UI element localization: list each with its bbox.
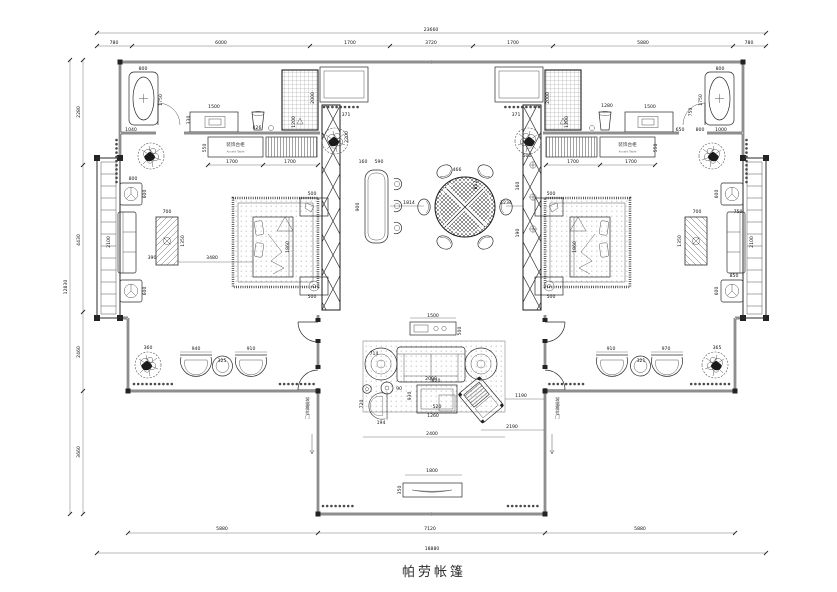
dimension-labels-layer: 2366078060001700372017005880780128302280… [63,27,755,552]
dim-label: 1750 [698,94,704,106]
tv-console [403,483,462,497]
dim-label: 750 [688,108,694,117]
dim-label: 550 [202,144,208,153]
dim-label: 550 [653,144,659,153]
dim-label: 1190 [515,393,527,399]
dim-label: 1200 [291,116,297,128]
dim-label: 700 [163,209,172,215]
central-hall [365,162,536,252]
dim-label: 1350 [180,235,186,247]
dim-label: 940 [192,346,201,352]
dim-label: 1500 [644,104,656,110]
dim-label: 1000 [715,127,727,133]
dimension-lines [68,31,768,555]
dim-label: 2460 [76,346,82,358]
dim-label: 2000 [545,92,551,104]
dim-label: 5880 [216,526,228,532]
dim-label: 714 [370,351,379,357]
dim-label: 3480 [206,255,218,261]
dim-label: 194 [377,420,386,426]
dim-label: 1700 [344,40,356,46]
dim-label: 6000 [215,40,227,46]
dim-label: 1234 [500,200,512,206]
dim-label: 325 [218,358,227,364]
dim-label: 720 [359,400,365,409]
floor-plan-drawing: 装饰台柜 Accent Table 装饰台柜 Accent Table 玻璃推拉… [0,0,837,592]
dim-label: 360 [144,345,153,351]
dim-label: 520 [433,404,442,410]
dim-label: 650 [676,127,685,133]
dim-label: 365 [713,345,722,351]
dim-label: 466 [453,167,462,173]
dim-label: 371 [342,112,351,118]
dim-label: 1280 [601,103,613,109]
drawing-title: 帕劳帐篷 [402,564,466,580]
dim-label: 750 [734,209,743,215]
dim-label: 426 [253,125,262,131]
accent-table-label-right-cn: 装饰台柜 [618,141,637,148]
dim-label: 800 [716,66,725,72]
dim-label: 350 [397,486,403,495]
dim-label: 3720 [425,40,437,46]
sliding-door-label-right: 玻璃推拉门 [555,396,560,421]
dim-label: 1800 [426,468,438,474]
dim-label: 1500 [427,313,439,319]
dim-label: 390 [148,255,157,261]
dim-label: 2280 [76,106,82,118]
dim-label: 700 [693,209,702,215]
dim-label: 1860 [285,241,291,253]
dim-label: 1350 [677,235,683,247]
sliding-door-label-left: 玻璃推拉门 [305,396,310,421]
dim-label: 800 [129,176,138,182]
dim-label: 18880 [425,546,440,552]
dim-label: 600 [142,287,148,296]
dim-label: 371 [512,112,521,118]
dim-label: 800 [696,127,705,133]
dim-label: 1260 [427,413,439,419]
dim-label: 850 [730,273,739,279]
dim-label: 5880 [634,526,646,532]
dim-label: 600 [142,190,148,199]
dim-label: 910 [607,346,616,352]
dim-label: 160 [515,182,521,191]
dim-label: 1200 [564,116,570,128]
dim-label: 321 [637,358,646,364]
dim-label: 190 [515,229,521,238]
dim-label: 2200 [344,131,350,143]
dim-label: 5880 [637,40,649,46]
dim-label: 500 [547,191,556,197]
accent-table-label-right-en: Accent Table [619,150,637,154]
dim-label: 1700 [284,159,296,165]
dim-label: 23660 [424,27,439,33]
dim-label: 2100 [106,236,112,248]
dim-label: 780 [745,40,754,46]
dim-label: 590 [375,159,384,165]
dim-label: 500 [547,294,556,300]
dim-label: 1700 [226,159,238,165]
dim-label: 1500 [208,104,220,110]
dim-label: 930 [407,392,413,401]
dim-label: 910 [247,346,256,352]
dim-label: 2100 [749,236,755,248]
dim-label: 820 [432,378,441,384]
dim-label: 2190 [506,424,518,430]
dim-label: 600 [714,190,720,199]
dim-label: 3660 [76,446,82,458]
dim-label: 1040 [125,127,137,133]
dim-label: 2000 [310,92,316,104]
dim-label: 500 [523,153,532,159]
dim-label: 90 [396,386,402,392]
accent-table-label-left-cn: 装饰台柜 [226,141,245,148]
dim-label: 1700 [567,159,579,165]
accent-table-label-left-en: Accent Table [227,150,245,154]
console-table [410,322,456,335]
dim-label: 1860 [572,241,578,253]
dim-label: 2400 [426,431,438,437]
dim-label: 600 [714,287,720,296]
dim-label: 1814 [403,200,415,206]
dim-label: 970 [662,346,671,352]
dim-label: 900 [355,203,361,212]
dim-label: 780 [110,40,119,46]
dim-label: 812 [473,181,479,190]
dim-label: 1750 [158,94,164,106]
dining-set [418,162,512,252]
dim-label: 330 [186,116,192,125]
dim-label: 800 [139,66,148,72]
dim-label: 1700 [625,159,637,165]
dim-label: 160 [359,159,368,165]
dim-label: 7120 [424,526,436,532]
dim-label: 4430 [76,234,82,246]
dim-label: 1700 [507,40,519,46]
bar-counter [365,170,388,243]
dim-label: 500 [308,191,317,197]
dim-label: 500 [457,327,463,336]
dim-label: 12830 [63,280,69,295]
dim-label: 500 [308,294,317,300]
floor-plan-page: 装饰台柜 Accent Table 装饰台柜 Accent Table 玻璃推拉… [0,0,837,592]
